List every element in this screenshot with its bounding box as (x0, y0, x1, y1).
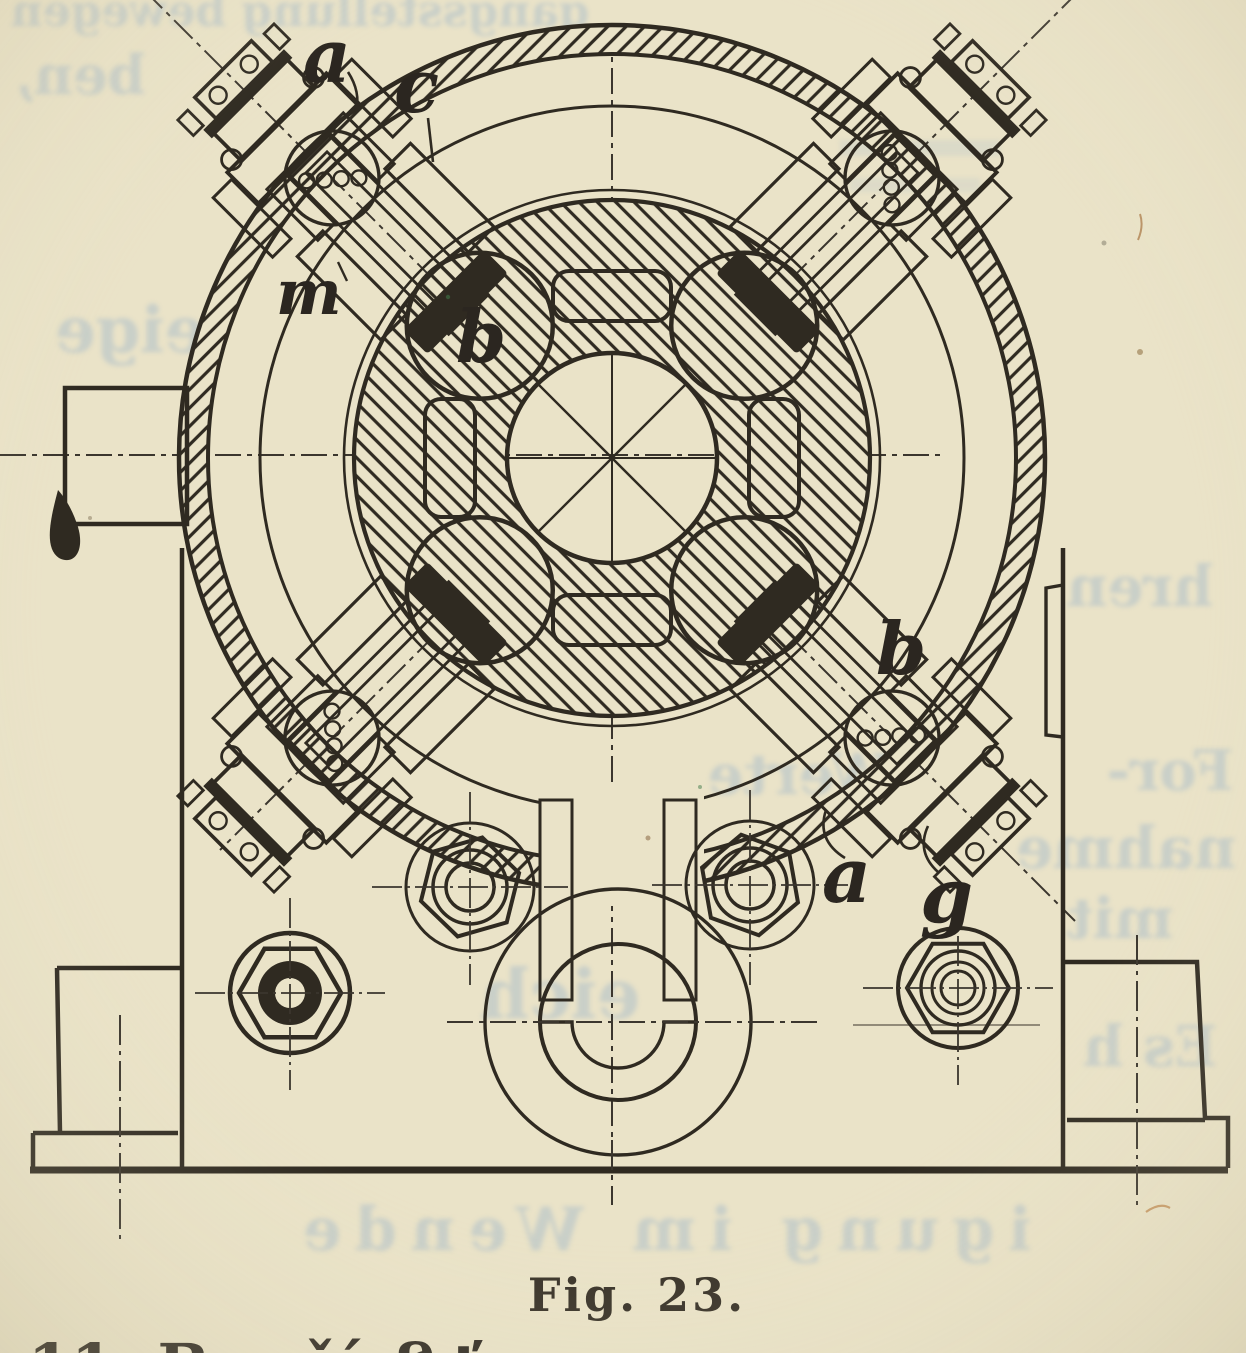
page-vignette (0, 0, 1246, 1353)
scanned-book-page: gangsstellung bewegen ben, eige in die h… (0, 0, 1246, 1353)
figure-23-technical-drawing: gangsstellung bewegen ben, eige in die h… (0, 0, 1246, 1353)
